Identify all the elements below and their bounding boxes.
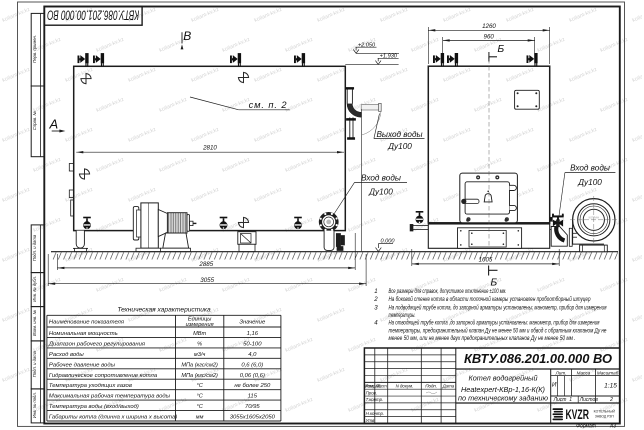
svg-text:Значение: Значение [239, 320, 266, 326]
svg-text:Масштаб: Масштаб [597, 370, 619, 375]
svg-text:Габариты котла (длинна х ширин: Габариты котла (длинна х ширина х высота… [49, 415, 177, 421]
svg-text:На подводящей трубе котла, д: На подводящей трубе котла, до запорной а… [389, 304, 608, 311]
svg-text:960: 960 [484, 33, 495, 40]
svg-text:Утв.: Утв. [366, 418, 376, 423]
svg-text:2885: 2885 [198, 261, 213, 268]
svg-text:Инв. № дубл.: Инв. № дубл. [32, 276, 37, 302]
svg-text:70/95: 70/95 [245, 404, 260, 410]
svg-text:Номинальная мощность: Номинальная мощность [49, 331, 118, 337]
svg-text:Листов: Листов [579, 397, 599, 403]
svg-text:Максимальная рабочая температу: Максимальная рабочая температура воды [49, 394, 171, 400]
svg-text:Диапазон рабочего регулировани: Диапазон рабочего регулирования [48, 341, 146, 347]
svg-text:Наименование показателя: Наименование показателя [49, 320, 125, 326]
svg-text:КВТУ.086.201.00.000 ВО: КВТУ.086.201.00.000 ВО [464, 351, 612, 366]
svg-text:Ду100: Ду100 [387, 142, 412, 151]
svg-text:Вход воды: Вход воды [570, 163, 610, 172]
svg-text:1: 1 [374, 288, 377, 295]
svg-text:Ду100: Ду100 [368, 188, 393, 197]
svg-text:Вход воды: Вход воды [361, 174, 401, 183]
svg-text:Все размеры для справок, допус: Все размеры для справок, допустимое откл… [389, 288, 507, 295]
svg-text:KVZR: KVZR [565, 407, 589, 422]
svg-text:Т.контр.: Т.контр. [366, 397, 384, 402]
svg-text:не более 250: не более 250 [234, 383, 271, 389]
svg-text:МПа (кгс/см2): МПа (кгс/см2) [181, 373, 218, 379]
svg-text:3055: 3055 [200, 277, 214, 284]
svg-text:N докум.: N докум. [396, 383, 414, 388]
svg-text:Гидравлическое сопротивление к: Гидравлическое сопротивление котла [49, 373, 158, 379]
svg-text:0,6 (6,0): 0,6 (6,0) [241, 362, 263, 368]
svg-text:КВТУ.086.201.00.000 ВО: КВТУ.086.201.00.000 ВО [47, 8, 139, 23]
svg-text:МВт: МВт [193, 331, 206, 337]
svg-text:температуры.: температуры. [389, 312, 416, 319]
svg-text:Н.контр.: Н.контр. [366, 411, 385, 416]
svg-text:2810: 2810 [202, 145, 217, 152]
svg-text:см. п. 2: см. п. 2 [249, 100, 288, 110]
svg-text:1605: 1605 [479, 257, 493, 264]
svg-text:Температура уходящих газов: Температура уходящих газов [49, 383, 132, 389]
svg-text:Лит.: Лит. [555, 370, 567, 375]
svg-text:Расход воды: Расход воды [49, 352, 85, 358]
svg-text:Дата: Дата [442, 383, 455, 388]
svg-text:На отводящей трубе котла ,до з: На отводящей трубе котла ,до запорной ар… [389, 320, 601, 327]
svg-text:1,16: 1,16 [247, 331, 259, 337]
svg-text:А: А [48, 116, 58, 131]
svg-text:В: В [183, 29, 191, 43]
svg-text:Масса: Масса [577, 370, 591, 375]
svg-text:Взам. инв. №: Взам. инв. № [32, 310, 37, 336]
svg-text:°С: °С [196, 394, 203, 400]
svg-text:50-100: 50-100 [243, 341, 262, 347]
svg-text:Справ. №: Справ. № [32, 111, 37, 130]
svg-text:1260: 1260 [482, 23, 496, 30]
svg-text:Перв. примен.: Перв. примен. [32, 35, 37, 63]
svg-text:°С: °С [196, 383, 203, 389]
svg-text:И: И [552, 382, 557, 389]
svg-text:А3: А3 [609, 424, 616, 430]
svg-text:4,0: 4,0 [248, 352, 257, 358]
svg-text:°С: °С [196, 404, 203, 410]
svg-text:Температура воды (вход/выход): Температура воды (вход/выход) [49, 404, 139, 410]
svg-text:Рабочее давление воды: Рабочее давление воды [49, 362, 116, 368]
svg-text:Подп.: Подп. [425, 383, 437, 388]
svg-text:КОТЕЛЬНЫЙ: КОТЕЛЬНЫЙ [594, 409, 616, 413]
svg-text:Лист: Лист [553, 397, 567, 403]
svg-text:Ду100: Ду100 [577, 178, 602, 187]
svg-text:Подп. и дата: Подп. и дата [32, 234, 37, 261]
svg-text:Б: Б [497, 43, 504, 55]
svg-text:Выход воды: Выход воды [376, 130, 422, 139]
svg-text:2: 2 [609, 397, 613, 403]
svg-text:измерения: измерения [186, 322, 214, 328]
svg-text:МПа (кгс/см2): МПа (кгс/см2) [181, 362, 218, 368]
svg-text:Котел водогрейный: Котел водогрейный [469, 374, 538, 383]
svg-text:На боковой стенке котла в обла: На боковой стенке котла в области топочн… [389, 296, 591, 303]
svg-text:115: 115 [248, 394, 258, 400]
svg-text:Пров.: Пров. [366, 390, 378, 395]
svg-text:%: % [197, 341, 202, 347]
svg-text:1: 1 [569, 397, 572, 403]
svg-text:2: 2 [373, 296, 378, 303]
svg-text:КОТЛАН: КОТЛАН [589, 215, 599, 219]
svg-text:0,06 (0,6): 0,06 (0,6) [240, 373, 265, 379]
svg-text:Формат: Формат [576, 424, 596, 430]
svg-text:1:15: 1:15 [604, 383, 617, 390]
svg-text:Разраб.: Разраб. [366, 384, 382, 389]
svg-text:Подп. и дата: Подп. и дата [32, 350, 37, 377]
svg-text:Техническая характеристика: Техническая характеристика [117, 307, 211, 314]
svg-text:3055х1605х2050: 3055х1605х2050 [230, 415, 276, 421]
svg-text:ЗАВОД РЗП: ЗАВОД РЗП [595, 414, 614, 418]
svg-text:температуры, предохранительный: температуры, предохранительный клапан Ду… [389, 327, 607, 334]
svg-text:по техническому заданию: по техническому заданию [458, 393, 549, 402]
svg-text:м3/ч: м3/ч [194, 352, 205, 358]
svg-text:Б: Б [490, 277, 497, 289]
svg-text:мм: мм [196, 415, 204, 421]
svg-text:Инв. № подл.: Инв. № подл. [32, 392, 37, 418]
svg-text:менее 50 мм, или не менее дву: менее 50 мм, или не менее двух предохран… [389, 335, 576, 342]
